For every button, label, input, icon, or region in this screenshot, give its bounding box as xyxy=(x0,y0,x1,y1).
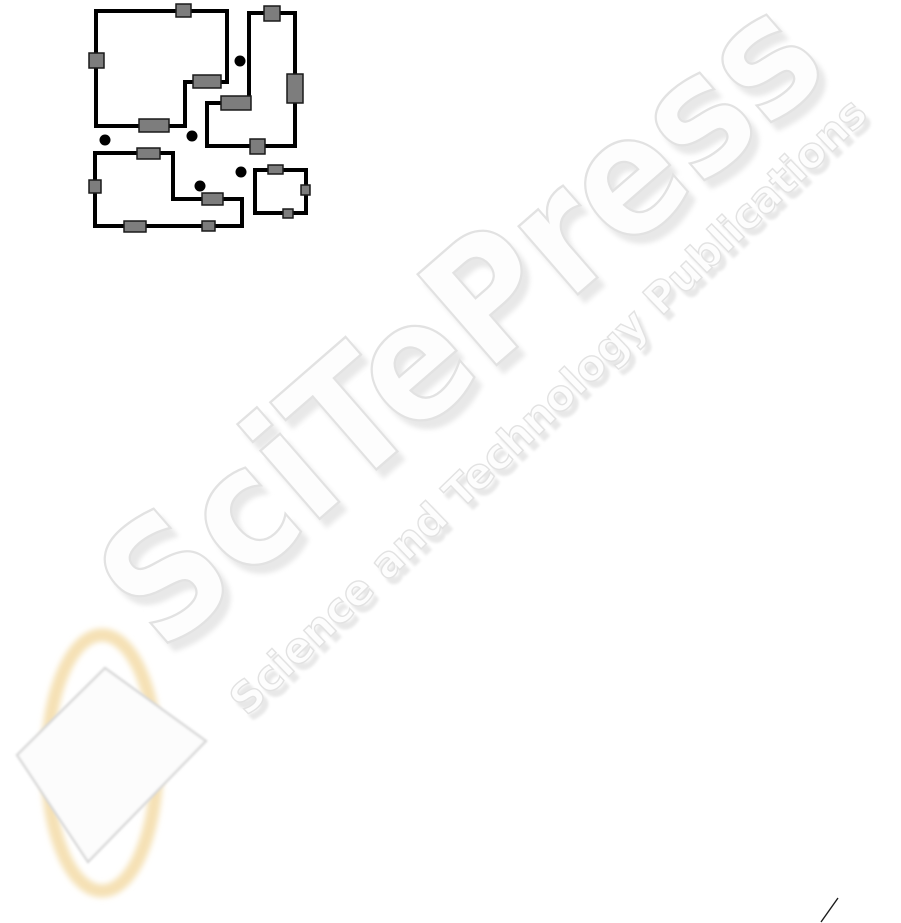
door-marker xyxy=(287,74,303,103)
door-marker xyxy=(250,139,265,154)
door-marker xyxy=(283,209,293,218)
door-marker xyxy=(137,148,160,159)
door-marker xyxy=(268,165,283,174)
vertex-dot xyxy=(236,167,247,178)
floorplan-figure xyxy=(89,4,310,232)
stray-slash-mark xyxy=(821,898,838,922)
door-marker xyxy=(264,6,280,21)
vertex-dot xyxy=(195,181,206,192)
scitepress-logo xyxy=(17,635,206,891)
door-marker xyxy=(89,180,101,193)
door-marker xyxy=(124,221,146,232)
door-marker xyxy=(193,75,221,88)
paper-page: SciTePress SciTePress Science and Techno… xyxy=(0,0,901,923)
door-marker xyxy=(202,193,223,205)
door-marker xyxy=(221,96,251,110)
door-marker xyxy=(176,4,191,17)
door-marker xyxy=(301,185,310,195)
logo-diamond-icon xyxy=(17,668,206,862)
room-outline xyxy=(255,170,306,213)
vertex-dot xyxy=(100,135,111,146)
door-marker xyxy=(89,53,104,68)
door-marker xyxy=(139,119,169,132)
vertex-dot xyxy=(235,56,246,67)
vertex-dot xyxy=(187,131,198,142)
page-scene: SciTePress SciTePress Science and Techno… xyxy=(0,0,901,923)
door-marker xyxy=(202,221,215,231)
watermark-title: SciTePress xyxy=(63,0,859,684)
room-outline xyxy=(95,153,242,226)
